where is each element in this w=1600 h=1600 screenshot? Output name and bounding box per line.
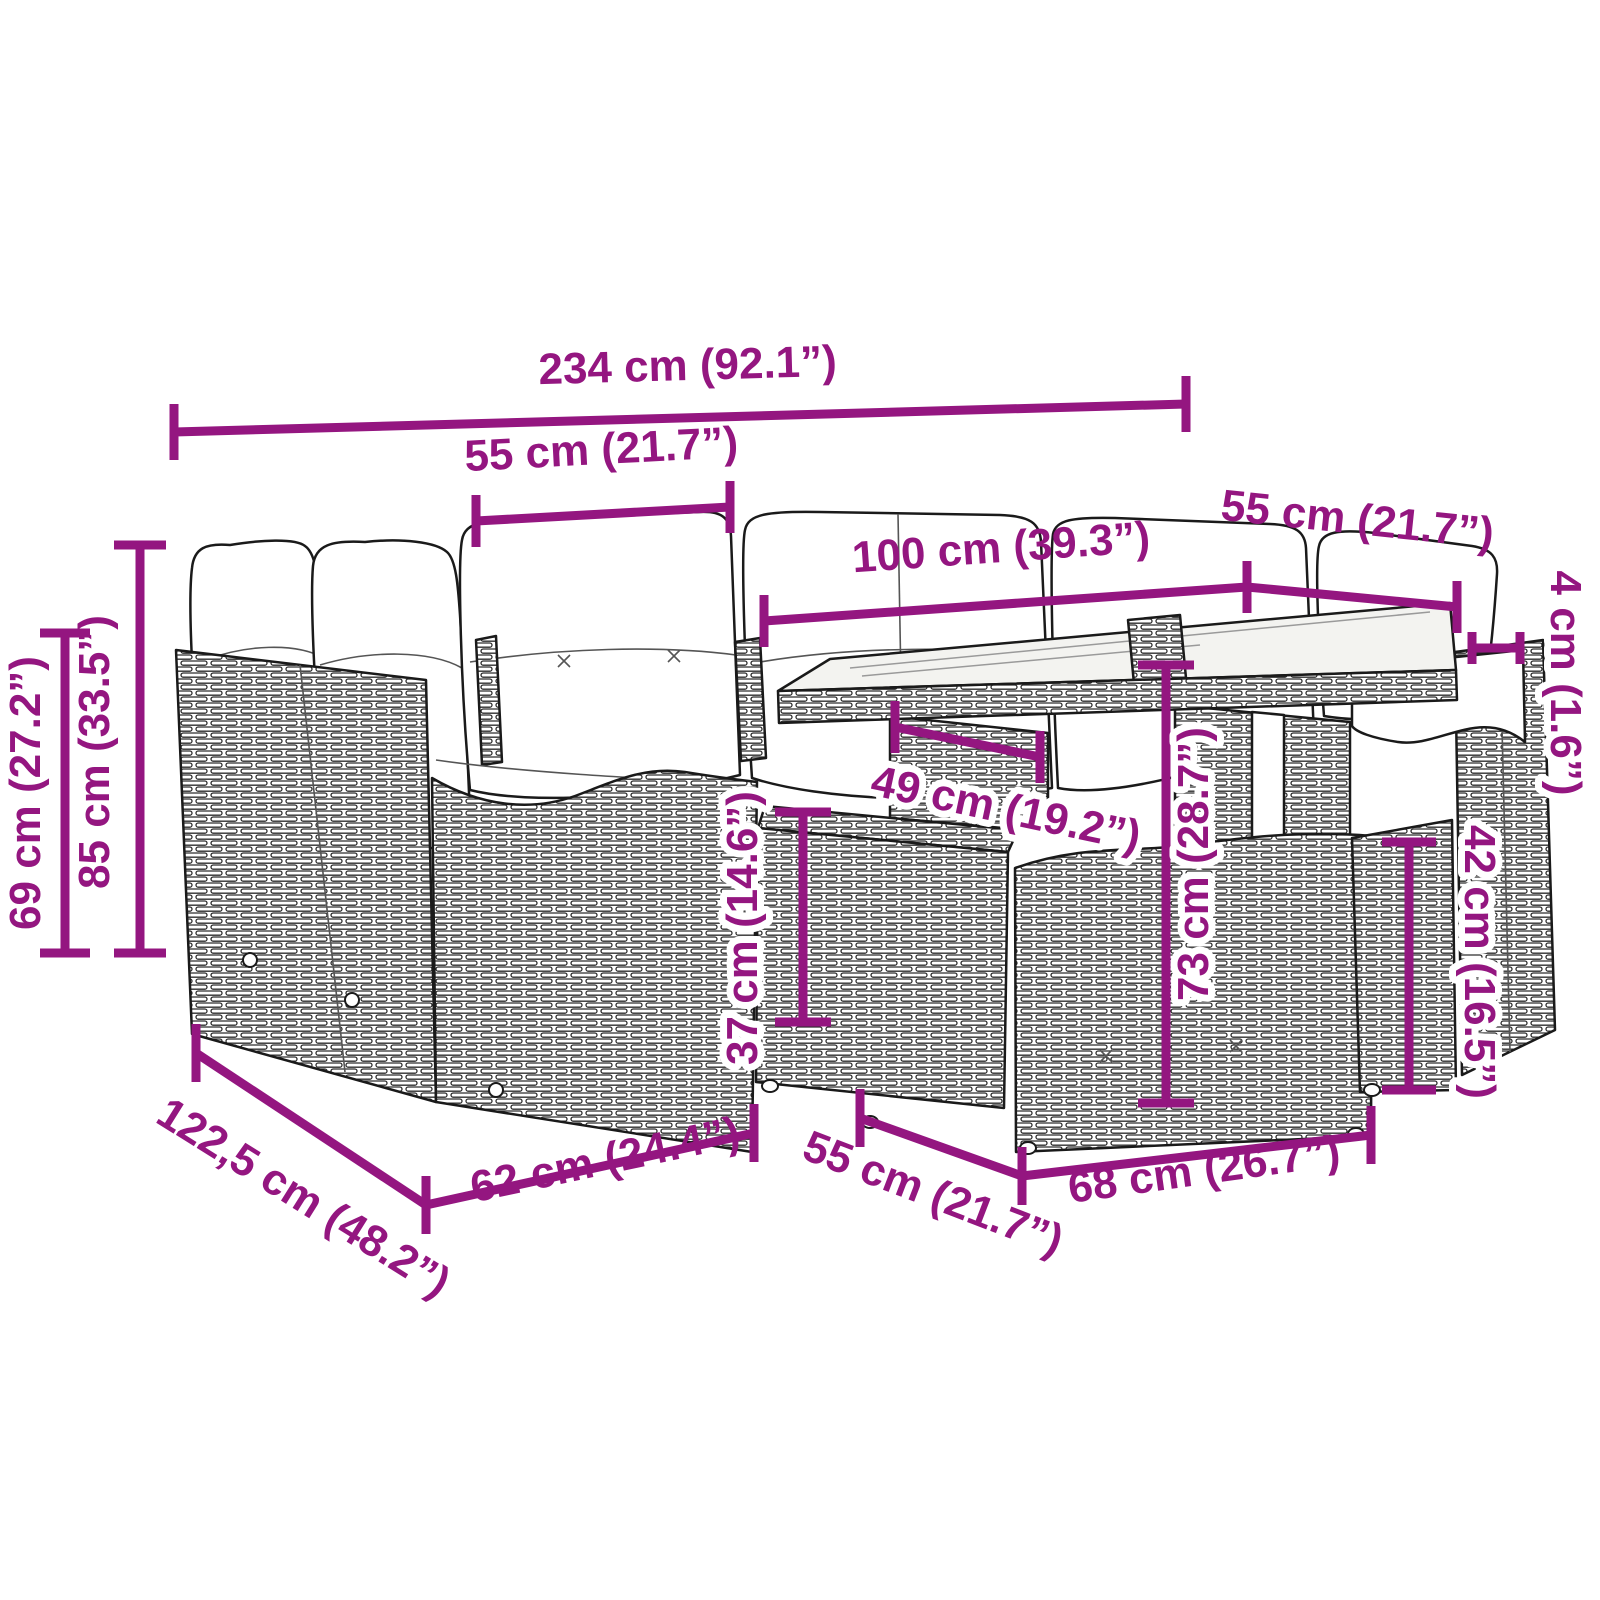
footstool-front [756, 828, 1008, 1108]
dim-total-width-label: 234 cm (92.1”) [538, 337, 838, 394]
dimension-diagram: 234 cm (92.1”) 55 cm (21.7”) 100 cm (39.… [0, 0, 1600, 1600]
table-pedestal-right-stripe [1252, 712, 1284, 852]
dim-back-height-label: 85 cm (33.5”) [70, 615, 119, 889]
dim-footstool-height-label: 37 cm (14.6”) [718, 791, 767, 1065]
back-post-middle [735, 638, 766, 761]
panel-connector-hole [243, 953, 257, 967]
footstool-foot [762, 1080, 778, 1092]
dim-arm-height-label: 69 cm (27.2”) [1, 656, 50, 930]
dim-ottoman-height-label: 42 cm (16.5”) [1455, 825, 1504, 1099]
ottoman-side-panel [1352, 820, 1456, 1092]
furniture-illustration [176, 512, 1555, 1154]
panel-connector-hole [345, 993, 359, 1007]
dim-table-height-label: 73 cm (28.7”) [1169, 727, 1218, 1001]
dim-tabletop-thickness-label: 4 cm (1.6”) [1541, 571, 1590, 796]
table-top-divider [1128, 615, 1186, 684]
sofa-front-panel [432, 771, 757, 1152]
panel-connector-hole [489, 1083, 503, 1097]
back-post-left [476, 636, 502, 765]
ottoman-side-foot [1364, 1084, 1380, 1096]
